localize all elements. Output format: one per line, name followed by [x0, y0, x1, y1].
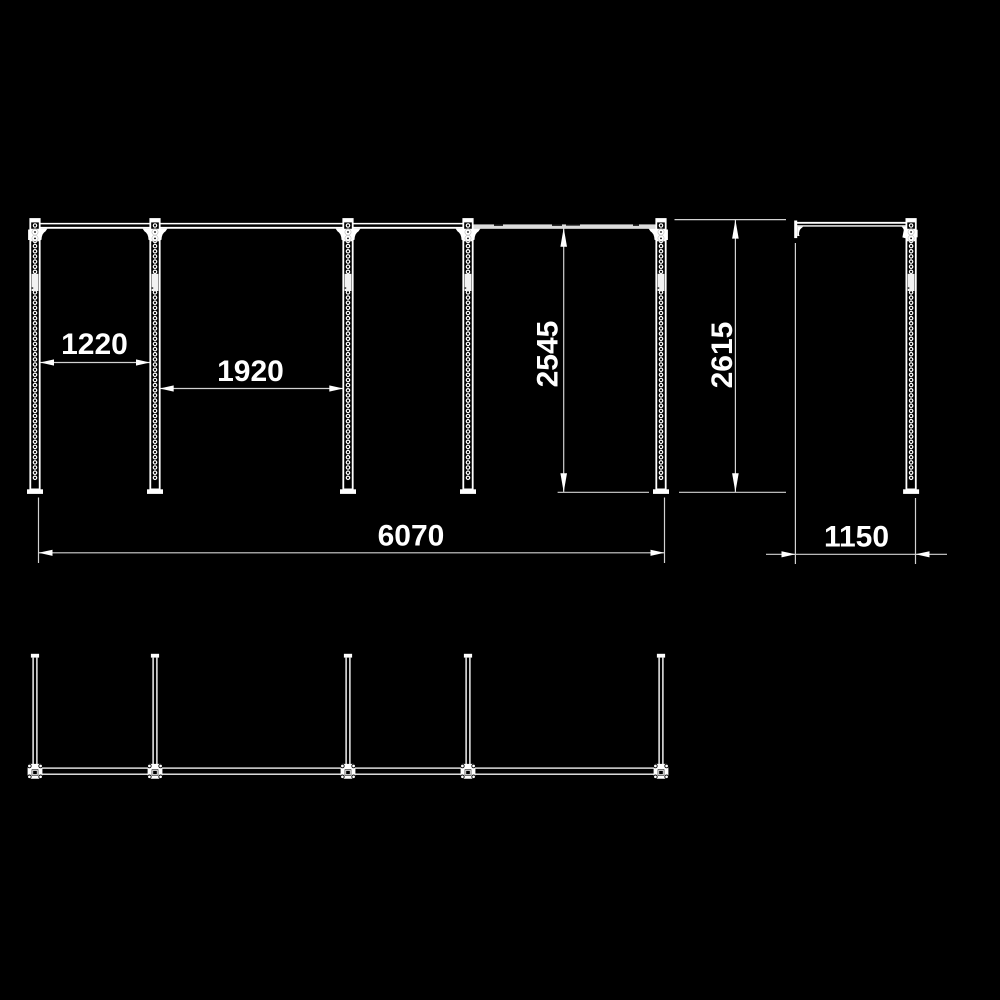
svg-text:2545: 2545 [531, 321, 564, 388]
svg-text:1920: 1920 [217, 355, 284, 388]
svg-text:2615: 2615 [706, 322, 739, 389]
svg-text:6070: 6070 [378, 520, 445, 553]
svg-text:1150: 1150 [824, 521, 889, 554]
svg-text:1220: 1220 [61, 328, 128, 361]
